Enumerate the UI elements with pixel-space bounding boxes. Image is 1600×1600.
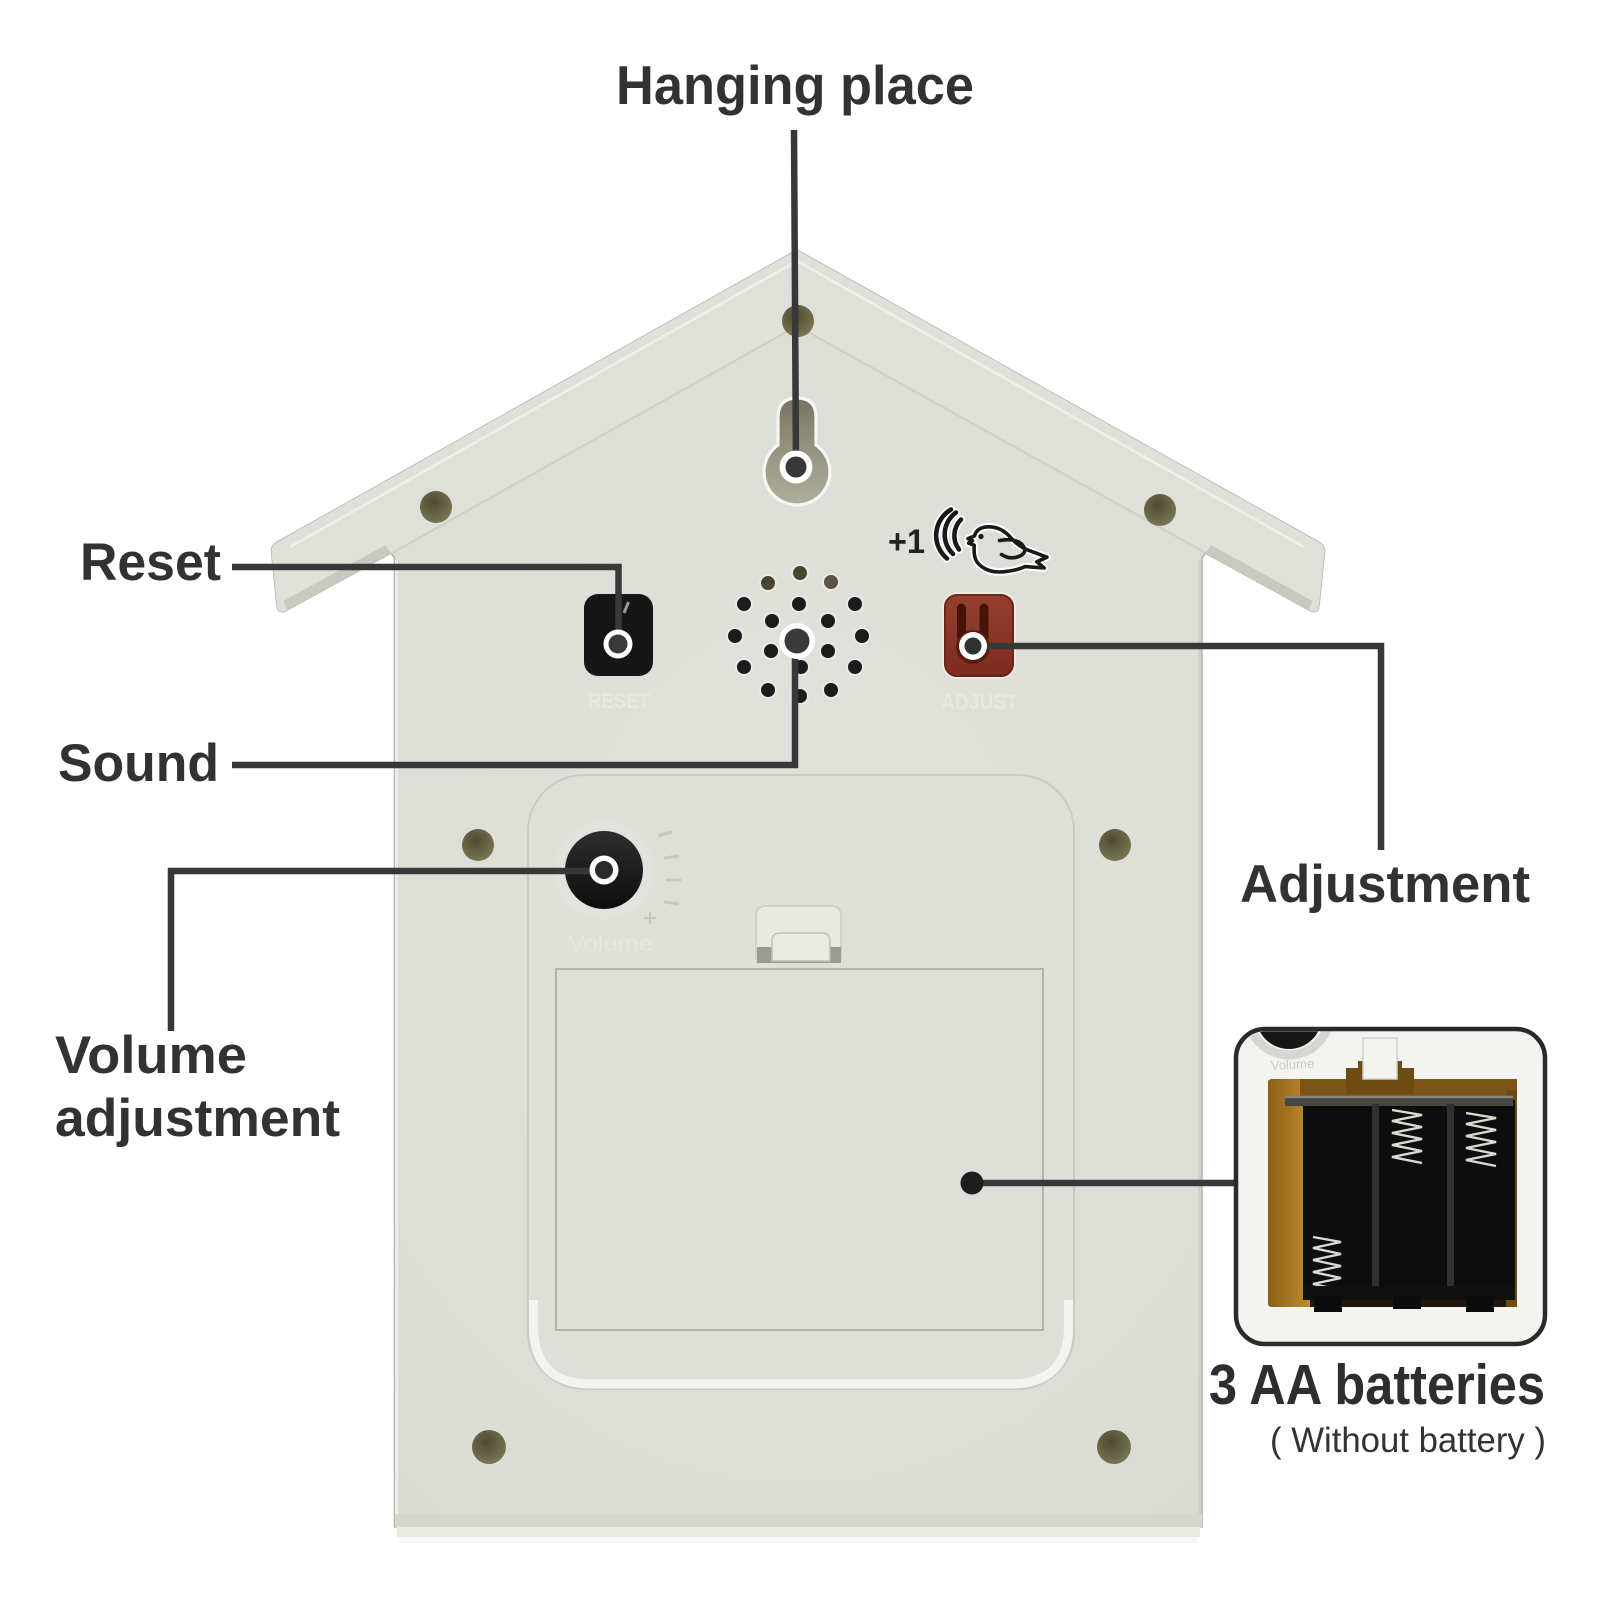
svg-text:RESET: RESET xyxy=(588,690,650,713)
svg-text:+: + xyxy=(643,905,657,932)
svg-text:Reset: Reset xyxy=(80,533,221,592)
svg-text:ADJUST: ADJUST xyxy=(941,691,1018,714)
svg-text:+: + xyxy=(1310,1042,1318,1057)
svg-text:+1: +1 xyxy=(888,523,925,561)
svg-text:Volume: Volume xyxy=(1270,1056,1314,1073)
svg-text:( Without battery ): ( Without battery ) xyxy=(1270,1421,1546,1460)
svg-text:Sound: Sound xyxy=(58,734,219,793)
svg-text:Hanging place: Hanging place xyxy=(616,54,974,116)
svg-text:Volume: Volume xyxy=(568,931,653,956)
svg-text:adjustment: adjustment xyxy=(55,1089,340,1148)
svg-text:Adjustment: Adjustment xyxy=(1240,855,1530,914)
svg-text:3 AA batteries: 3 AA batteries xyxy=(1209,1353,1545,1417)
svg-text:Volume: Volume xyxy=(55,1026,247,1085)
